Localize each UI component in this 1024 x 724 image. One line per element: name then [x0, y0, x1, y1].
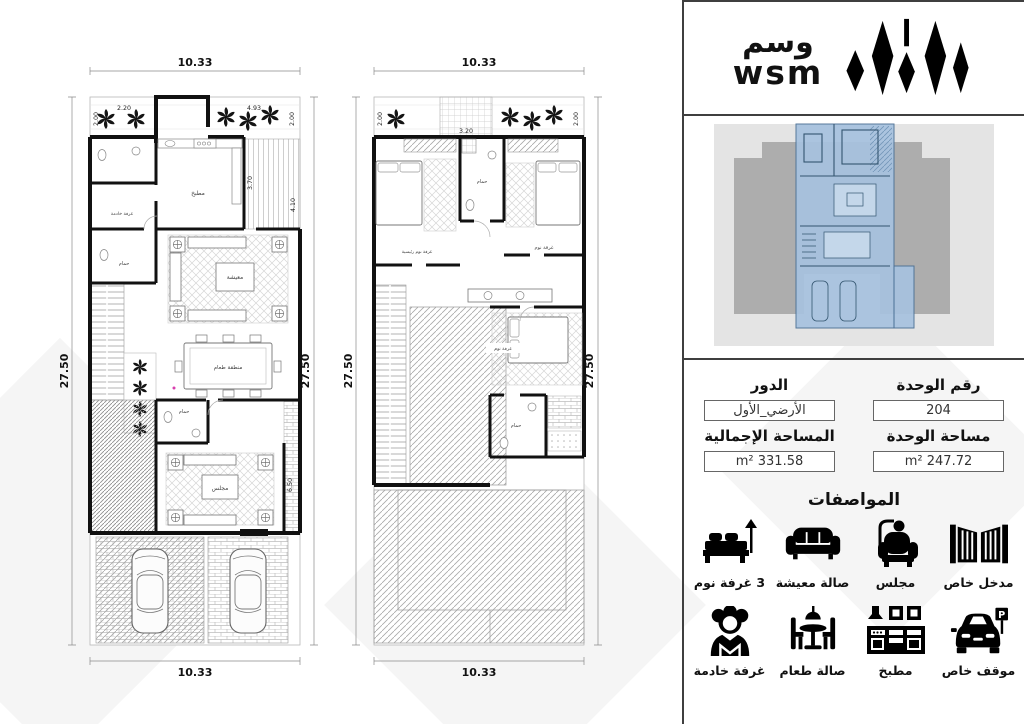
basin [132, 147, 140, 155]
room-label-bedroom2: غرفة نوم [494, 347, 512, 352]
room-label-majlis: مجلس [212, 485, 229, 492]
toilet [100, 250, 108, 261]
logo: وسم wsm [684, 2, 1024, 116]
info-panel: وسم wsm [682, 0, 1024, 724]
logo-latin: wsm [733, 56, 824, 89]
unit-number-value: 204 [873, 400, 1004, 421]
sub-dim: 3.70 [247, 176, 254, 190]
room-label-maid: غرفة خادمة [111, 212, 134, 217]
room-label-dining: منطقة طعام [214, 365, 243, 371]
dim-width-bottom: 10.33 [178, 666, 213, 679]
specs-title: المواصفات [684, 490, 1024, 510]
logo-text: وسم wsm [733, 28, 824, 89]
car-plan [230, 549, 266, 633]
sub-dim: 2.00 [573, 112, 580, 126]
roof-area [374, 490, 584, 643]
sub-dim: 4.10 [290, 198, 297, 212]
spec-item-label: موقف خاص [942, 663, 1016, 678]
room-label-master: غرفة نوم رئيسية [402, 250, 433, 255]
balcony-gravel [548, 431, 581, 451]
armchair-icon [867, 518, 925, 568]
total-area-label: المساحة الإجمالية [694, 427, 845, 445]
specs-grid: مدخل خاص مجلس [684, 518, 1024, 678]
total-area-value: 331.58 m² [704, 451, 835, 472]
dim-height-left: 27.50 [342, 353, 355, 388]
basin [192, 429, 200, 437]
majlis: مجلس [166, 453, 274, 525]
unit-info: رقم الوحدة الدور 204 الأرضي_الأول مساحة … [684, 360, 1024, 476]
spec-item-dining-room: صالة طعام [771, 606, 854, 678]
maid-icon [701, 606, 759, 656]
sofa-icon [784, 518, 842, 568]
dining-icon [784, 606, 842, 656]
dining-area: منطقة طعام [175, 335, 281, 397]
sub-dim: 2.00 [377, 112, 384, 126]
spec-item-kitchen: مطبخ [854, 606, 937, 678]
balcony-brick [548, 396, 581, 428]
entry-gate [240, 529, 268, 536]
room-label-living: معيشة [227, 274, 244, 281]
spec-item-label: صالة معيشة [776, 575, 850, 590]
sub-dim: 6.50 [287, 478, 294, 492]
bedroom2: غرفة نوم [486, 313, 582, 385]
spec-item-label: 3 غرفة نوم [694, 575, 765, 590]
room-label-bedroom: غرفة نوم [534, 245, 553, 251]
dim-height-left: 27.50 [58, 353, 71, 388]
unit-area-value: 247.72 m² [873, 451, 1004, 472]
site-plan [684, 116, 1024, 360]
floor-value: الأرضي_الأول [704, 400, 835, 421]
plan-sheet: 10.33 10.33 27.50 27.50 2.20 4.93 2.00 2… [0, 0, 1024, 724]
vanity-counter [468, 289, 552, 302]
spec-item-living-room: صالة معيشة [771, 518, 854, 590]
parking [96, 537, 288, 643]
spec-item-maid-room: غرفة خادمة [688, 606, 771, 678]
dim-width-bottom: 10.33 [462, 666, 497, 679]
spec-item-label: مجلس [876, 575, 916, 590]
room-label-bath2: حمام [179, 409, 190, 415]
bed-icon [701, 518, 759, 568]
spec-item-label: مدخل خاص [944, 575, 1014, 590]
spec-item-parking: P موقف خاص [937, 606, 1020, 678]
room-label-bath: حمام [119, 261, 130, 267]
entry-ramp [90, 400, 156, 533]
spec-item-private-entrance: مدخل خاص [937, 518, 1020, 590]
spec-item-bedrooms: 3 غرفة نوم [688, 518, 771, 590]
first-floor-plan: 10.33 10.33 27.50 27.50 3.20 2.00 2.00 [340, 54, 612, 686]
unit-area-label: مساحة الوحدة [863, 427, 1014, 445]
spec-item-majlis: مجلس [854, 518, 937, 590]
spec-item-label: غرفة خادمة [694, 663, 766, 678]
room-label-bath: حمام [477, 179, 488, 185]
room-label-kitchen: مطبخ [191, 190, 205, 197]
dim-width-top: 10.33 [462, 56, 497, 69]
unit-number-label: رقم الوحدة [863, 376, 1014, 394]
logo-diamonds-icon [843, 15, 975, 101]
gate-icon [950, 518, 1008, 568]
parking-sign-letter: P [998, 610, 1005, 621]
floor-label: الدور [694, 376, 845, 394]
toilet [164, 412, 172, 423]
sub-dim: 2.00 [289, 112, 296, 126]
sub-dim: 3.20 [459, 128, 473, 135]
kitchen-icon [867, 606, 925, 656]
sub-dim: 2.20 [117, 105, 131, 112]
car-icon: P [950, 606, 1008, 656]
spec-item-label: صالة طعام [779, 663, 845, 678]
room-label-bath2: حمام [511, 423, 522, 429]
living-room: معيشة [168, 235, 288, 323]
spec-item-label: مطبخ [878, 663, 912, 678]
plan-marker [173, 387, 176, 390]
ground-floor-plan: 10.33 10.33 27.50 27.50 2.20 4.93 2.00 2… [56, 54, 328, 686]
car-plan [132, 549, 168, 633]
dim-width-top: 10.33 [178, 56, 213, 69]
side-path [284, 400, 300, 533]
sub-dim: 2.00 [93, 112, 100, 126]
toilet [98, 150, 106, 161]
sub-dim: 4.93 [247, 105, 261, 112]
